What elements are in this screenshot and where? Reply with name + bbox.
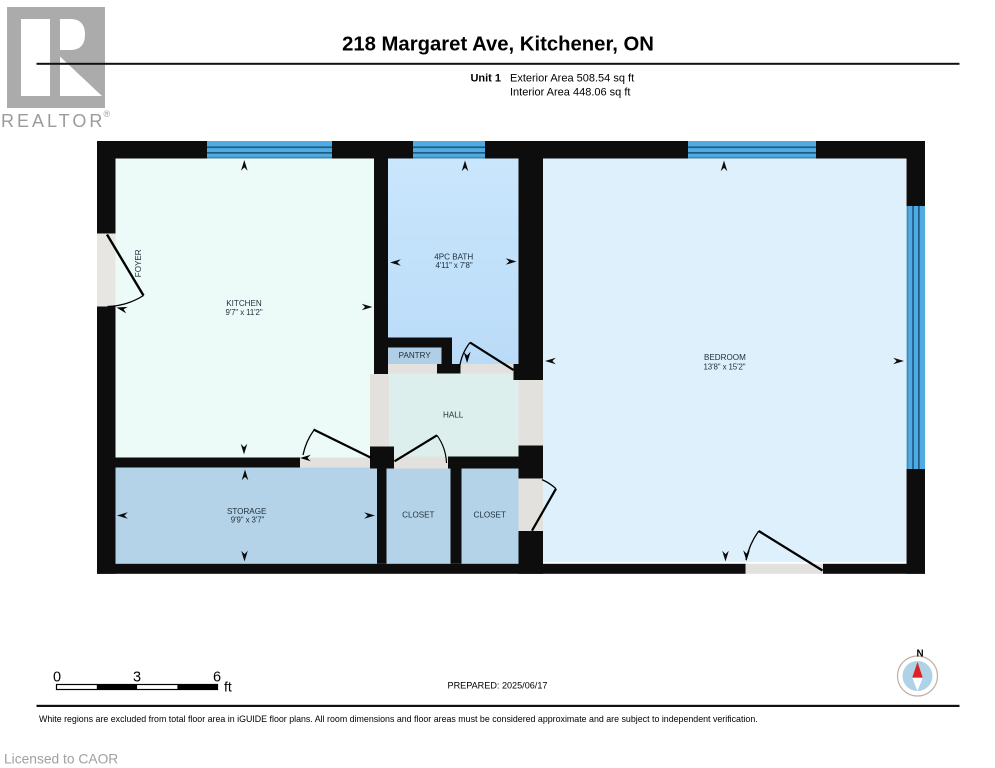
svg-text:FOYER: FOYER [134,249,143,277]
svg-text:218 Margaret Ave, Kitchener, O: 218 Margaret Ave, Kitchener, ON [342,34,654,56]
svg-text:Exterior Area 508.54 sq ft: Exterior Area 508.54 sq ft [510,73,634,85]
svg-text:4'11" x 7'8": 4'11" x 7'8" [435,261,472,270]
svg-text:Licensed to CAOR: Licensed to CAOR [4,752,118,767]
svg-text:White regions are excluded fro: White regions are excluded from total fl… [39,714,758,724]
svg-text:®: ® [104,109,111,119]
svg-text:PREPARED: 2025/06/17: PREPARED: 2025/06/17 [448,680,548,690]
svg-text:3: 3 [133,670,141,686]
svg-text:9'7" x 11'2": 9'7" x 11'2" [225,308,262,317]
svg-text:CLOSET: CLOSET [402,510,434,519]
svg-text:N: N [916,649,923,660]
svg-text:REALTOR: REALTOR [1,111,105,131]
svg-text:KITCHEN: KITCHEN [226,299,262,308]
svg-text:Unit 1: Unit 1 [470,73,501,85]
svg-text:9'9" x 3'7": 9'9" x 3'7" [231,516,265,525]
svg-text:PANTRY: PANTRY [399,351,432,360]
svg-text:HALL: HALL [443,410,464,419]
svg-text:6: 6 [213,670,221,686]
svg-text:Interior Area 448.06 sq ft: Interior Area 448.06 sq ft [510,86,630,98]
svg-text:BEDROOM: BEDROOM [704,353,746,362]
svg-text:13'8" x 15'2": 13'8" x 15'2" [704,362,746,371]
svg-text:CLOSET: CLOSET [474,510,506,519]
svg-text:ft: ft [224,679,232,695]
svg-text:0: 0 [53,670,61,686]
